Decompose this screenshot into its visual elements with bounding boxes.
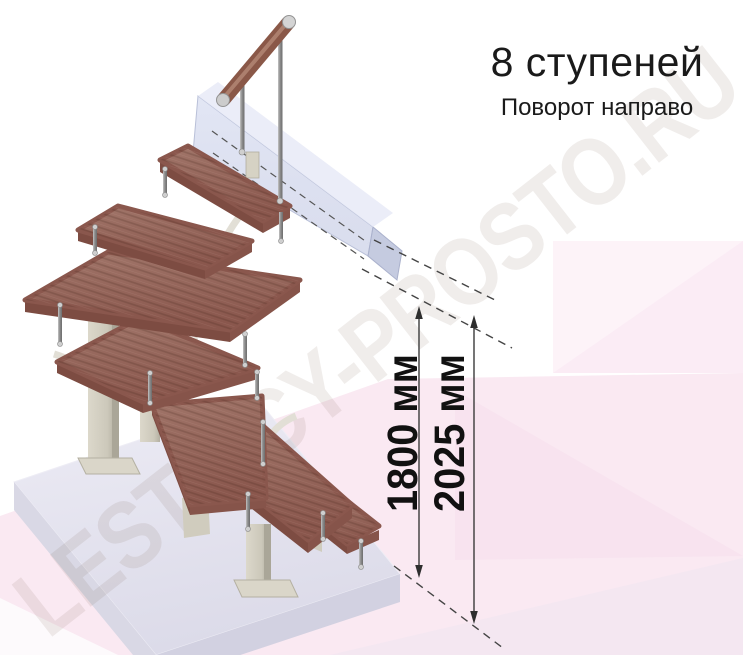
dimension-label-2025: 2025 мм [426,354,474,512]
page-subtitle: Поворот направо [452,94,742,122]
page-title: 8 ступеней [452,40,742,85]
dimension-label-1800: 1800 мм [379,354,427,512]
beam-mount-plate [246,152,259,178]
handrail [217,16,296,107]
header: 8 ступеней Поворот направо [452,40,742,122]
handrail-end-cap [217,94,230,107]
staircase-product-illustration: LESTNICY-PROSTO.RU [0,0,743,655]
handrail-top-cap [283,16,296,29]
